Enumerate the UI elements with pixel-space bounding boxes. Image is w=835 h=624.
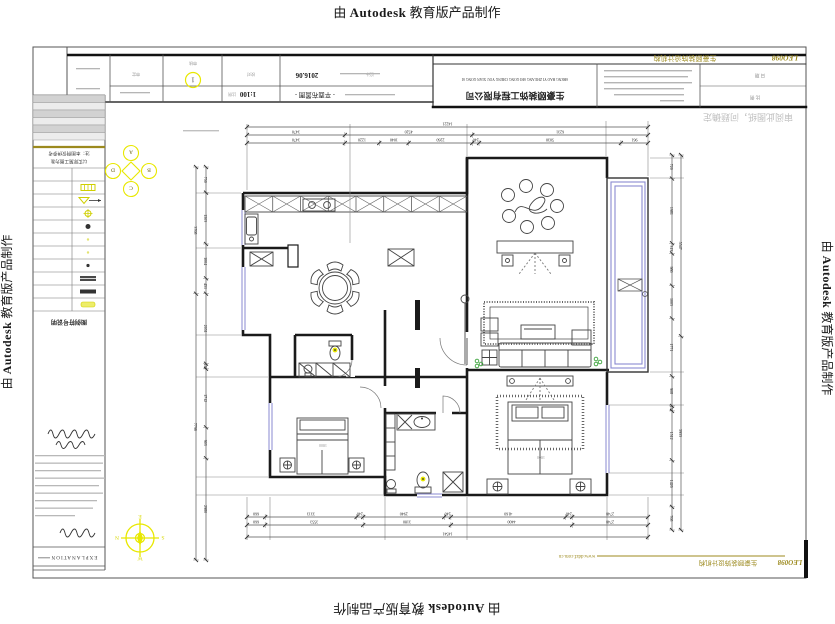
svg-text:4400: 4400	[508, 519, 516, 524]
svg-text:1003: 1003	[669, 298, 674, 306]
signature-squiggle-3	[60, 529, 95, 537]
svg-text:1040: 1040	[390, 137, 398, 142]
footer-brand-row: www.ddzf.com.cn 生豪颐装饰设计机构 LEO098	[558, 553, 803, 568]
legend-symbol-table	[33, 168, 105, 311]
svg-text:4520: 4520	[405, 129, 413, 134]
watermark-top: 由 Autodesk 教育版产品制作	[333, 5, 500, 20]
corner-basin	[304, 365, 312, 373]
field-label-date: 日 期	[754, 72, 765, 78]
title-block: 1 2016.06 1:100 比例 - 平面布置图 - 审定 审核 校对 设计…	[67, 54, 806, 124]
master-bed-size: 1800	[537, 455, 545, 460]
living-room	[461, 180, 602, 368]
field-label-scale: 比 例	[749, 94, 760, 101]
svg-text:152: 152	[669, 405, 674, 411]
legend-note-2: 以实际施工图为准	[50, 158, 87, 165]
elevation-letter-a: A	[129, 149, 133, 155]
compass-letter-bottom: W	[137, 555, 143, 561]
elevation-letter-c: C	[129, 185, 133, 191]
bed1-size: 1800	[319, 443, 327, 448]
watermark-right: 由 Autodesk 教育版产品制作	[820, 241, 835, 396]
brand-logo-bottom: LEO098	[777, 558, 803, 566]
svg-text:1712: 1712	[203, 394, 208, 402]
company-name-cn: 生豪颐装饰工程有限公司	[465, 91, 564, 102]
legend-header-stripes	[33, 95, 105, 140]
legend-explanation: EXPLANATION	[50, 554, 97, 560]
legend-note-1: 注：本图例仅供参考	[48, 150, 90, 157]
svg-text:903: 903	[203, 440, 208, 446]
dining-table	[319, 272, 351, 304]
svg-text:7796: 7796	[193, 423, 198, 431]
svg-text:3470: 3470	[292, 137, 300, 142]
elevation-marker: A B C D	[106, 146, 157, 197]
svg-text:451: 451	[203, 283, 208, 289]
toilet-tank	[329, 341, 341, 346]
title-label-1: 审核	[189, 61, 197, 67]
svg-text:1503: 1503	[203, 214, 208, 222]
dining-area	[308, 262, 361, 314]
title-date: 2016.06	[295, 71, 318, 79]
corner-basin	[387, 480, 396, 489]
title-drawing-name: - 平面布置图 -	[295, 91, 335, 100]
bay-window	[607, 178, 648, 372]
watermark-left: 由 Autodesk 教育版产品制作	[0, 235, 14, 390]
watermark-bottom: 由 Autodesk 教育版产品制作	[333, 601, 500, 616]
svg-text:3180: 3180	[403, 519, 411, 524]
title-label-0: 审定	[132, 72, 140, 78]
floor-plan-sheet: 由 Autodesk 教育版产品制作 由 Autodesk 教育版产品制作 由 …	[0, 0, 835, 624]
svg-text:6231: 6231	[556, 129, 564, 134]
kitchen-cabinet-row	[245, 196, 467, 212]
svg-text:660: 660	[253, 511, 259, 516]
svg-text:5547: 5547	[678, 242, 683, 250]
svg-text:2260: 2260	[436, 137, 444, 142]
bathroom	[386, 414, 463, 493]
svg-text:14541: 14541	[443, 531, 453, 536]
title-scale-label: 比例	[228, 92, 236, 98]
svg-text:1426: 1426	[669, 480, 674, 488]
svg-text:720: 720	[669, 164, 674, 170]
svg-text:961: 961	[631, 137, 637, 142]
svg-text:3708: 3708	[193, 226, 198, 234]
bedroom-1: 1800	[280, 363, 364, 474]
legend-title: 图例符号说明	[51, 318, 87, 326]
svg-text:150: 150	[203, 363, 208, 369]
brand-logo-top: LEO098	[772, 54, 800, 63]
svg-text:4160: 4160	[504, 511, 512, 516]
elevation-letter-d: D	[111, 167, 115, 173]
svg-text:3553: 3553	[310, 519, 318, 524]
coffee-table	[521, 325, 555, 339]
legend-notes-paragraph	[35, 455, 105, 516]
svg-text:1512: 1512	[669, 432, 674, 440]
tv-console	[497, 241, 573, 274]
svg-text:2748: 2748	[606, 511, 614, 516]
compass-letter-top: E	[138, 513, 142, 519]
dining-chairs	[308, 262, 361, 314]
svg-text:1220: 1220	[358, 137, 366, 142]
compass-rose: E N S W	[115, 513, 165, 561]
company-name-en: SHENG HAO YI ZHUANG SHI GONG CHENG YOU X…	[461, 77, 568, 81]
website: www.ddzf.com.cn	[558, 553, 595, 558]
svg-text:2748: 2748	[606, 519, 614, 524]
svg-text:1004: 1004	[203, 257, 208, 265]
signature-squiggle-2	[56, 442, 85, 449]
title-notes-lines	[76, 68, 692, 101]
svg-text:2051: 2051	[203, 325, 208, 333]
svg-text:1981: 1981	[669, 207, 674, 215]
kitchen	[245, 196, 467, 266]
brand-name-top: 生豪颐装饰设计机构	[654, 54, 717, 63]
vanity	[397, 414, 435, 430]
compass-letter-left: N	[115, 534, 119, 540]
svg-text:986: 986	[669, 267, 674, 273]
svg-text:240: 240	[473, 137, 479, 142]
svg-text:240: 240	[566, 511, 572, 516]
title-label-2: 校对	[247, 72, 255, 78]
svg-text:750: 750	[203, 177, 208, 183]
svg-text:708: 708	[669, 515, 674, 521]
sheet-index: 1	[191, 76, 195, 84]
floor-plan-walls	[243, 158, 609, 495]
title-scale: 1:100	[239, 90, 256, 98]
svg-text:1771: 1771	[669, 343, 674, 351]
svg-text:908: 908	[669, 388, 674, 394]
master-bedroom: 1800	[487, 376, 591, 494]
decor-flowers	[502, 180, 564, 234]
brand-name-bottom: 生豪颐装饰设计机构	[698, 559, 757, 568]
legend-panel: 注：本图例仅供参考 以实际施工图为准 图例符号说明 EXPLANATION	[33, 95, 105, 570]
svg-text:14221: 14221	[443, 121, 453, 126]
svg-text:660: 660	[253, 519, 259, 524]
drawing-note-bar	[183, 130, 219, 131]
sofa-set	[461, 295, 594, 367]
svg-text:3470: 3470	[292, 129, 300, 134]
title-label-3: 设计	[366, 72, 374, 78]
signature-squiggle-1	[48, 430, 95, 438]
svg-text:240: 240	[357, 511, 363, 516]
doors	[335, 337, 471, 413]
svg-text:313: 313	[669, 245, 674, 251]
review-note: 审阅此图纸，问题确定	[703, 112, 793, 123]
svg-text:5030: 5030	[546, 137, 554, 142]
svg-text:5933: 5933	[678, 429, 683, 437]
compass-letter-right: S	[161, 534, 164, 540]
powder-room	[304, 341, 341, 376]
svg-text:2980: 2980	[203, 505, 208, 513]
elevation-letter-b: B	[147, 167, 151, 173]
svg-text:2940: 2940	[400, 511, 408, 516]
svg-text:3313: 3313	[307, 511, 315, 516]
svg-text:240: 240	[445, 511, 451, 516]
cad-sheet-viewport: 由 Autodesk 教育版产品制作 由 Autodesk 教育版产品制作 由 …	[0, 0, 835, 624]
legend-explanation-value	[38, 557, 50, 558]
plant-right	[594, 357, 602, 366]
